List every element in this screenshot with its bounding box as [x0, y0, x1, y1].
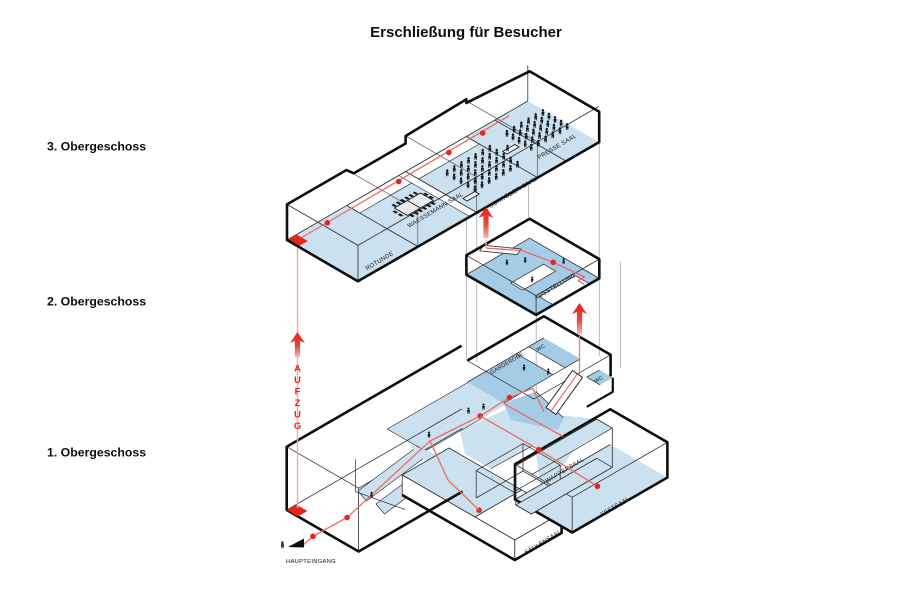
- svg-text:A: A: [294, 364, 301, 374]
- svg-text:HAUPTEINGANG: HAUPTEINGANG: [286, 559, 336, 565]
- svg-text:U: U: [294, 410, 301, 420]
- svg-text:2. Obergeschoss: 2. Obergeschoss: [47, 295, 146, 309]
- svg-text:3. Obergeschoss: 3. Obergeschoss: [47, 140, 146, 154]
- svg-text:F: F: [295, 387, 301, 397]
- svg-text:1. Obergeschoss: 1. Obergeschoss: [47, 446, 146, 460]
- svg-text:G: G: [294, 421, 301, 431]
- svg-text:U: U: [294, 375, 301, 385]
- svg-text:Z: Z: [295, 398, 301, 408]
- svg-text:Erschließung für Besucher: Erschließung für Besucher: [370, 24, 562, 41]
